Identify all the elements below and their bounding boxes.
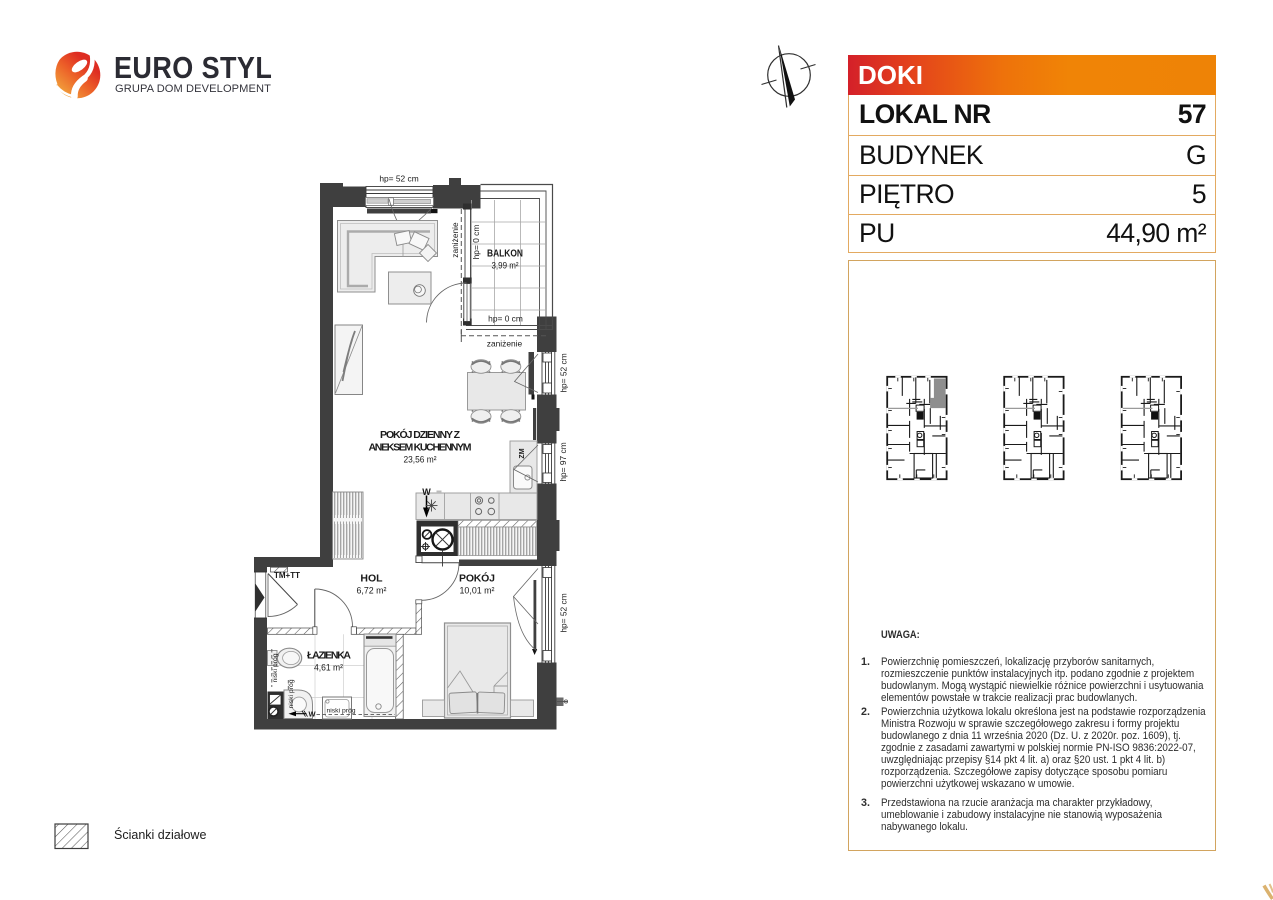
svg-text:zaniżenie: zaniżenie [450,222,460,258]
svg-text:HOL: HOL [360,573,383,585]
svg-text:POKÓJ DZIENNY Z: POKÓJ DZIENNY Z [380,428,461,441]
svg-text:BALKON: BALKON [487,248,523,260]
svg-text:hp= 52 cm: hp= 52 cm [559,593,569,632]
svg-text:niski próg: niski próg [272,653,279,682]
svg-text:23,56 m²: 23,56 m² [404,455,437,466]
svg-text:niski próg: niski próg [326,708,355,715]
svg-text:hp= 0 cm: hp= 0 cm [471,225,481,260]
svg-text:niski próg: niski próg [288,679,295,708]
svg-text:hp= 97 cm: hp= 97 cm [558,442,568,481]
svg-text:POKÓJ: POKÓJ [459,572,495,585]
svg-text:zaniżenie: zaniżenie [487,339,523,349]
svg-text:TM+TT: TM+TT [274,571,300,580]
svg-text:6,72 m²: 6,72 m² [357,586,387,597]
svg-text:ZM: ZM [519,448,526,458]
svg-text:ANEKSEM KUCHENNYM: ANEKSEM KUCHENNYM [369,442,472,454]
svg-text:ŁAZIENKA: ŁAZIENKA [307,650,351,662]
svg-text:hp= 0 cm: hp= 0 cm [488,314,523,324]
svg-text:hp= 52 cm: hp= 52 cm [559,353,569,392]
svg-text:10,01 m²: 10,01 m² [460,586,495,597]
svg-text:W: W [308,710,316,719]
svg-text:W: W [422,487,431,497]
svg-text:4,61 m²: 4,61 m² [314,663,343,674]
svg-text:3,99 m²: 3,99 m² [492,261,519,272]
svg-text:hp= 52 cm: hp= 52 cm [379,174,418,184]
